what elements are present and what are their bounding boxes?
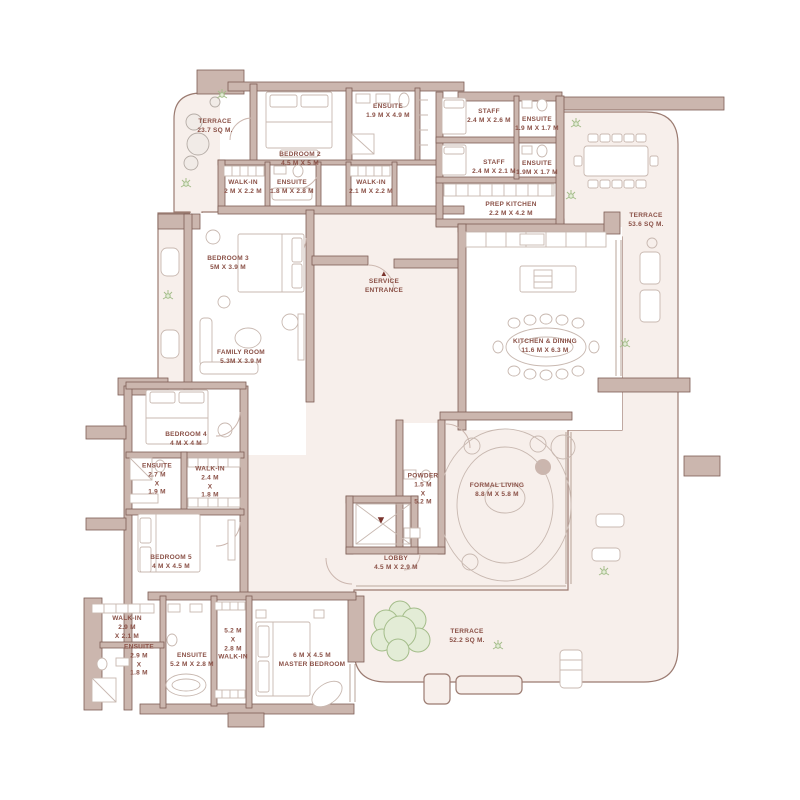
room-name: WALK-IN bbox=[195, 465, 225, 474]
room-name: LOBBY bbox=[374, 555, 418, 564]
room-name: ENSUITE bbox=[515, 116, 559, 125]
room-name: ENSUITE bbox=[124, 643, 154, 652]
room-dims: 8.8 M X 5.8 M bbox=[470, 491, 524, 500]
room-name: TERRACE bbox=[197, 118, 232, 127]
room-dims: 1.9 M X 4.9 M bbox=[366, 112, 410, 121]
room-dims: 1.5 M X 5.2 M bbox=[408, 481, 439, 507]
closet-shelves-icon bbox=[224, 166, 264, 176]
room-dims: 2.9 M X 2.1 M bbox=[112, 624, 142, 642]
label-terrace-bottom: TERRACE 52.2 SQ M. bbox=[449, 628, 484, 646]
room-dims: 1.8 M X 2.8 M bbox=[270, 188, 314, 197]
closet-shelves-icon bbox=[92, 604, 154, 613]
room-dims: 1.9M X 1.7 M bbox=[516, 169, 558, 178]
room-dims: 2.7 M X 1.9 M bbox=[142, 471, 172, 497]
room-dims: 2.4 M X 2.1 M bbox=[472, 168, 516, 177]
room-dims: 1.9 M X 1.7 M bbox=[515, 125, 559, 134]
room-name: FAMILY ROOM bbox=[217, 349, 265, 358]
lobby-entrance-arrow-icon: ▼ bbox=[376, 516, 387, 527]
room-dims: 2 M X 2.2 M bbox=[224, 188, 262, 197]
room-dims: 6 M X 4.5 M bbox=[279, 652, 346, 661]
label-ensuite-staff-upper: ENSUITE 1.9 M X 1.7 M bbox=[515, 116, 559, 134]
room-name: TERRACE bbox=[628, 212, 663, 221]
room-name: BEDROOM 4 bbox=[165, 431, 207, 440]
room-dims: 4 M X 4 M bbox=[165, 440, 207, 449]
label-kitchen-dining: KITCHEN & DINING 11.6 M X 6.3 M bbox=[513, 338, 577, 356]
label-walk-in-hall: WALK-IN 2.1 M X 2.2 M bbox=[349, 179, 393, 197]
room-name: ENSUITE bbox=[516, 160, 558, 169]
room-name: ENSUITE bbox=[170, 652, 214, 661]
room-name: WALK-IN bbox=[224, 179, 262, 188]
label-service-entrance: ▲ SERVICE ENTRANCE bbox=[365, 270, 403, 296]
label-lobby: LOBBY 4.5 M X 2.9 M bbox=[374, 555, 418, 573]
room-dims: 5.2 M X 2.8 M bbox=[218, 627, 248, 653]
floor-plan: TERRACE 23.7 SQ M. BEDROOM 2 4.5 M X 5 M… bbox=[0, 0, 800, 800]
label-family-room: FAMILY ROOM 5.3M X 3.9 M bbox=[217, 349, 265, 367]
label-terrace-top-left: TERRACE 23.7 SQ M. bbox=[197, 118, 232, 136]
label-ensuite-bottom-left: ENSUITE 2.9 M X 1.8 M bbox=[124, 643, 154, 678]
label-ensuite-bedroom-2: ENSUITE 1.8 M X 2.8 M bbox=[270, 179, 314, 197]
lounge-chair-icon bbox=[161, 248, 179, 276]
service-entrance-arrow-icon: ▲ bbox=[365, 270, 403, 278]
label-powder: POWDER 1.5 M X 5.2 M bbox=[408, 472, 439, 507]
label-formal-living: FORMAL LIVING 8.8 M X 5.8 M bbox=[470, 482, 524, 500]
label-walk-in-bottom-left: WALK-IN 2.9 M X 2.1 M bbox=[112, 615, 142, 641]
room-name: PREP KITCHEN bbox=[485, 201, 536, 210]
label-staff-lower: STAFF 2.4 M X 2.1 M bbox=[472, 159, 516, 177]
room-name: ENSUITE bbox=[366, 103, 410, 112]
room-name: MASTER BEDROOM bbox=[279, 661, 346, 670]
room-dims: 4 M X 4.5 M bbox=[150, 563, 192, 572]
room-name: FORMAL LIVING bbox=[470, 482, 524, 491]
room-name: KITCHEN & DINING bbox=[513, 338, 577, 347]
room-name: ENSUITE bbox=[142, 462, 172, 471]
label-walk-in-bedroom-4: WALK-IN 2.4 M X 1.8 M bbox=[195, 465, 225, 500]
room-name: BEDROOM 5 bbox=[150, 554, 192, 563]
planter-icon bbox=[424, 674, 450, 704]
room-name: STAFF bbox=[467, 108, 511, 117]
room-dims: 5.3M X 3.9 M bbox=[217, 358, 265, 367]
label-bedroom-4: BEDROOM 4 4 M X 4 M bbox=[165, 431, 207, 449]
room-name: POWDER bbox=[408, 472, 439, 481]
label-ensuite-master: ENSUITE 5.2 M X 2.8 M bbox=[170, 652, 214, 670]
label-bedroom-3: BEDROOM 3 5M X 3.9 M bbox=[207, 255, 249, 273]
room-name: WALK-IN bbox=[218, 654, 248, 663]
prep-kitchen-counter-icon bbox=[444, 184, 554, 196]
label-ensuite-bedroom-2-main: ENSUITE 1.9 M X 4.9 M bbox=[366, 103, 410, 121]
label-staff-upper: STAFF 2.4 M X 2.6 M bbox=[467, 108, 511, 126]
room-name: BEDROOM 2 bbox=[279, 151, 321, 160]
lounge-chair-icon bbox=[161, 330, 179, 358]
room-name: TERRACE bbox=[449, 628, 484, 637]
room-dims: 2.1 M X 2.2 M bbox=[349, 188, 393, 197]
room-name: BEDROOM 3 bbox=[207, 255, 249, 264]
label-walk-in-bedroom-2: WALK-IN 2 M X 2.2 M bbox=[224, 179, 262, 197]
room-dims: 4.5 M X 2.9 M bbox=[374, 564, 418, 573]
room-dims: 2.2 M X 4.2 M bbox=[485, 210, 536, 219]
label-ensuite-bedroom-4: ENSUITE 2.7 M X 1.9 M bbox=[142, 462, 172, 497]
room-dims: 53.6 SQ M. bbox=[628, 221, 663, 230]
room-name: WALK-IN bbox=[112, 615, 142, 624]
label-walk-in-master: 5.2 M X 2.8 M WALK-IN bbox=[218, 627, 248, 662]
room-dims: 52.2 SQ M. bbox=[449, 637, 484, 646]
room-dims: 11.6 M X 6.3 M bbox=[513, 347, 577, 356]
label-bedroom-2: BEDROOM 2 4.5 M X 5 M bbox=[279, 151, 321, 169]
room-dims: 23.7 SQ M. bbox=[197, 127, 232, 136]
room-name: WALK-IN bbox=[349, 179, 393, 188]
room-dims: 5M X 3.9 M bbox=[207, 264, 249, 273]
room-name: SERVICE ENTRANCE bbox=[365, 278, 403, 296]
room-name: ENSUITE bbox=[270, 179, 314, 188]
room-name: STAFF bbox=[472, 159, 516, 168]
planter-icon bbox=[456, 676, 522, 694]
round-table-icon bbox=[535, 459, 551, 475]
room-dims: 2.9 M X 1.8 M bbox=[124, 652, 154, 678]
bed-icon bbox=[266, 92, 332, 157]
kitchen-island-icon bbox=[520, 266, 576, 292]
kitchen-counter-icon bbox=[466, 232, 606, 247]
label-bedroom-5: BEDROOM 5 4 M X 4.5 M bbox=[150, 554, 192, 572]
label-ensuite-staff-lower: ENSUITE 1.9M X 1.7 M bbox=[516, 160, 558, 178]
label-terrace-right: TERRACE 53.6 SQ M. bbox=[628, 212, 663, 230]
label-master-bedroom: 6 M X 4.5 M MASTER BEDROOM bbox=[279, 652, 346, 670]
room-dims: 2.4 M X 1.8 M bbox=[195, 474, 225, 500]
room-dims: 4.5 M X 5 M bbox=[279, 160, 321, 169]
room-dims: 2.4 M X 2.6 M bbox=[467, 117, 511, 126]
room-dims: 5.2 M X 2.8 M bbox=[170, 661, 214, 670]
closet-shelves-icon bbox=[350, 166, 390, 176]
label-prep-kitchen: PREP KITCHEN 2.2 M X 4.2 M bbox=[485, 201, 536, 219]
